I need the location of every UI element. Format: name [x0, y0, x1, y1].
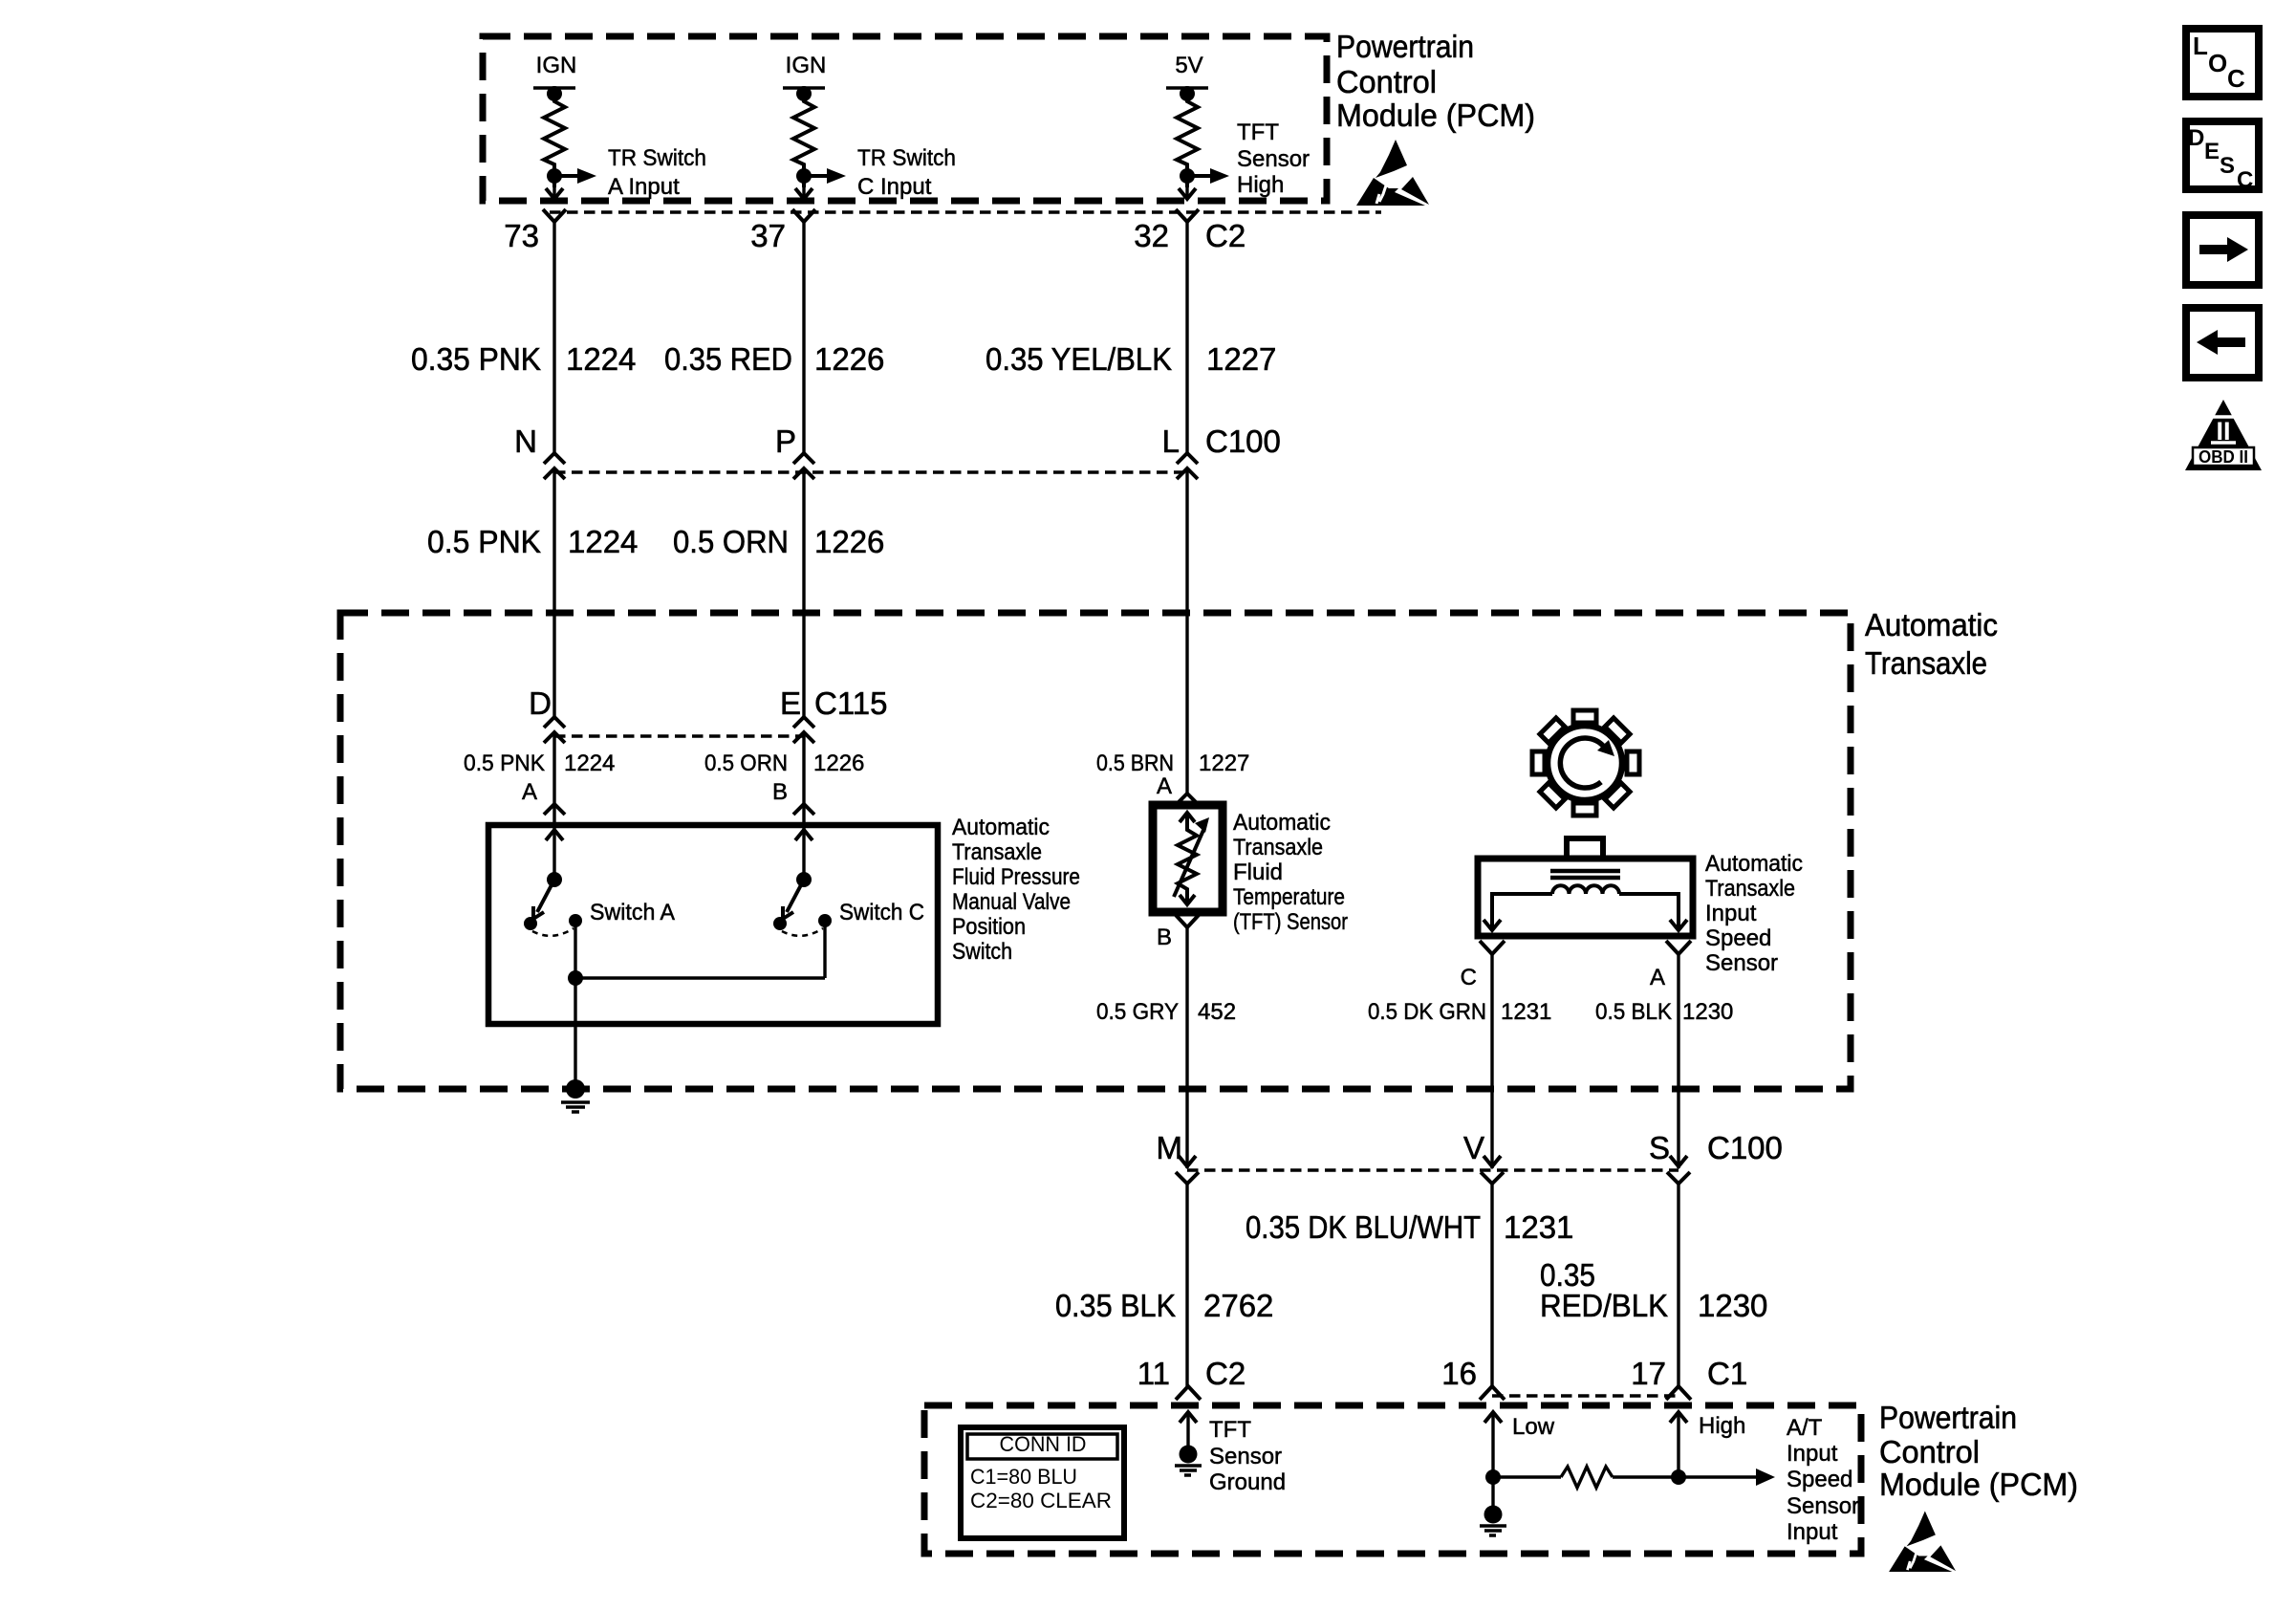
svg-text:Switch C: Switch C: [839, 900, 924, 925]
svg-text:Automatic: Automatic: [1233, 810, 1331, 836]
svg-text:B: B: [772, 779, 788, 805]
svg-text:1231: 1231: [1504, 1209, 1573, 1245]
svg-text:Module (PCM): Module (PCM): [1336, 98, 1535, 133]
svg-text:C1: C1: [1707, 1356, 1747, 1391]
svg-text:11: 11: [1137, 1356, 1170, 1391]
svg-text:Manual Valve: Manual Valve: [952, 889, 1071, 915]
svg-text:Speed: Speed: [1787, 1467, 1852, 1492]
svg-text:0.35 DK BLU/WHT: 0.35 DK BLU/WHT: [1245, 1209, 1481, 1245]
svg-text:Transaxle: Transaxle: [952, 839, 1042, 865]
svg-text:L: L: [2193, 32, 2208, 60]
svg-text:1226: 1226: [813, 751, 864, 776]
svg-text:Module (PCM): Module (PCM): [1879, 1467, 2078, 1502]
svg-text:CONN ID: CONN ID: [1000, 1432, 1087, 1456]
svg-text:C Input: C Input: [857, 174, 932, 200]
svg-text:1227: 1227: [1199, 751, 1249, 776]
svg-text:A: A: [1650, 965, 1665, 990]
svg-text:L: L: [1162, 424, 1180, 459]
svg-text:5V: 5V: [1175, 53, 1202, 78]
svg-text:C1=80 BLU: C1=80 BLU: [970, 1465, 1077, 1489]
svg-text:C2=80 CLEAR: C2=80 CLEAR: [970, 1489, 1112, 1512]
svg-text:Input: Input: [1787, 1441, 1838, 1467]
svg-text:Transaxle: Transaxle: [1865, 645, 1987, 681]
svg-text:P: P: [775, 424, 796, 459]
svg-text:1226: 1226: [814, 341, 884, 377]
svg-text:N: N: [514, 424, 537, 459]
svg-text:Automatic: Automatic: [1865, 607, 1998, 642]
svg-text:0.35 PNK: 0.35 PNK: [411, 341, 541, 377]
svg-text:Switch: Switch: [952, 939, 1012, 965]
svg-text:0.5 BLK: 0.5 BLK: [1595, 999, 1672, 1025]
svg-text:A: A: [522, 779, 537, 805]
svg-text:Control: Control: [1336, 64, 1437, 99]
svg-text:RED/BLK: RED/BLK: [1540, 1288, 1668, 1323]
svg-text:M: M: [1157, 1130, 1183, 1165]
svg-text:0.35 RED: 0.35 RED: [664, 341, 792, 377]
svg-text:Sensor: Sensor: [1237, 146, 1310, 172]
svg-text:Input: Input: [1787, 1519, 1838, 1545]
svg-text:Control: Control: [1879, 1434, 1980, 1469]
svg-text:O: O: [2208, 49, 2227, 77]
svg-text:TR Switch: TR Switch: [608, 145, 706, 171]
svg-text:C100: C100: [1707, 1130, 1783, 1165]
svg-text:A Input: A Input: [608, 174, 680, 200]
svg-text:16: 16: [1441, 1356, 1477, 1391]
svg-text:C2: C2: [1205, 218, 1245, 253]
svg-text:D: D: [529, 685, 552, 721]
svg-text:D: D: [2188, 125, 2204, 151]
svg-text:Sensor: Sensor: [1209, 1444, 1282, 1469]
svg-text:TFT: TFT: [1237, 120, 1279, 145]
svg-text:37: 37: [750, 218, 786, 253]
svg-text:73: 73: [504, 218, 539, 253]
svg-text:High: High: [1237, 172, 1284, 198]
svg-text:TR Switch: TR Switch: [857, 145, 956, 171]
svg-text:0.5 ORN: 0.5 ORN: [704, 751, 788, 776]
svg-text:1226: 1226: [814, 524, 884, 559]
svg-text:OBD II: OBD II: [2199, 447, 2248, 467]
svg-text:Automatic: Automatic: [1705, 851, 1803, 877]
svg-text:0.35 BLK: 0.35 BLK: [1055, 1288, 1176, 1323]
svg-text:A: A: [1157, 773, 1172, 799]
svg-text:1230: 1230: [1682, 999, 1733, 1025]
svg-text:Speed: Speed: [1705, 925, 1771, 951]
svg-text:Powertrain: Powertrain: [1879, 1400, 2017, 1435]
svg-text:17: 17: [1631, 1356, 1666, 1391]
svg-text:0.5 PNK: 0.5 PNK: [427, 524, 541, 559]
svg-text:S: S: [2220, 153, 2235, 179]
svg-text:Automatic: Automatic: [952, 815, 1050, 840]
svg-text:32: 32: [1134, 218, 1169, 253]
svg-text:1224: 1224: [568, 524, 638, 559]
svg-text:2762: 2762: [1203, 1288, 1273, 1323]
svg-text:Fluid Pressure: Fluid Pressure: [952, 864, 1080, 890]
svg-text:E: E: [780, 685, 801, 721]
svg-text:1224: 1224: [566, 341, 636, 377]
svg-text:B: B: [1157, 925, 1172, 950]
svg-text:0.5 DK GRN: 0.5 DK GRN: [1368, 999, 1486, 1025]
svg-text:1231: 1231: [1501, 999, 1551, 1025]
svg-text:S: S: [1649, 1130, 1670, 1165]
svg-text:1227: 1227: [1206, 341, 1276, 377]
svg-text:Sensor: Sensor: [1705, 950, 1778, 976]
svg-text:C: C: [2237, 167, 2253, 193]
svg-text:Transaxle: Transaxle: [1233, 835, 1323, 860]
svg-text:(TFT) Sensor: (TFT) Sensor: [1233, 909, 1348, 935]
svg-text:Fluid: Fluid: [1233, 859, 1283, 885]
svg-text:0.5 GRY: 0.5 GRY: [1096, 999, 1179, 1025]
svg-text:E: E: [2204, 139, 2220, 164]
svg-text:Input: Input: [1705, 901, 1757, 926]
svg-text:C115: C115: [814, 685, 887, 721]
svg-text:IGN: IGN: [536, 53, 577, 78]
svg-text:C: C: [1461, 965, 1477, 990]
svg-text:0.5 BRN: 0.5 BRN: [1096, 751, 1174, 776]
svg-text:IGN: IGN: [786, 53, 827, 78]
svg-text:Temperature: Temperature: [1233, 884, 1345, 910]
svg-text:A/T: A/T: [1787, 1415, 1823, 1441]
svg-text:Low: Low: [1512, 1414, 1555, 1440]
svg-text:0.5 PNK: 0.5 PNK: [464, 751, 545, 776]
svg-text:Switch A: Switch A: [590, 900, 675, 925]
svg-text:1224: 1224: [564, 751, 615, 776]
svg-text:C: C: [2227, 64, 2245, 93]
svg-text:Powertrain: Powertrain: [1336, 29, 1474, 64]
svg-text:Sensor: Sensor: [1787, 1493, 1859, 1519]
svg-text:452: 452: [1198, 999, 1236, 1025]
svg-text:Position: Position: [952, 914, 1026, 940]
svg-text:1230: 1230: [1698, 1288, 1767, 1323]
svg-text:0.35 YEL/BLK: 0.35 YEL/BLK: [986, 341, 1172, 377]
svg-text:V: V: [1463, 1130, 1484, 1165]
svg-text:High: High: [1699, 1413, 1745, 1439]
svg-text:TFT: TFT: [1209, 1417, 1251, 1443]
svg-text:C100: C100: [1205, 424, 1281, 459]
svg-text:Transaxle: Transaxle: [1705, 876, 1795, 902]
svg-text:Ground: Ground: [1209, 1469, 1286, 1495]
svg-text:0.5 ORN: 0.5 ORN: [673, 524, 789, 559]
svg-text:C2: C2: [1205, 1356, 1245, 1391]
